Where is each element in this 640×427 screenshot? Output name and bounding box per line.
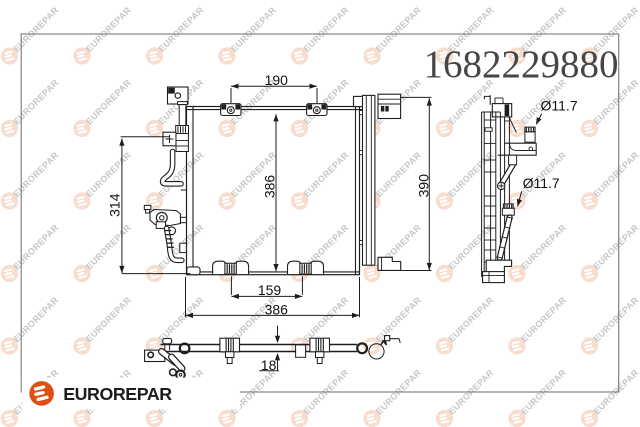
svg-text:1682229880: 1682229880 <box>424 43 619 86</box>
svg-text:18: 18 <box>261 357 277 373</box>
svg-text:314: 314 <box>106 193 122 217</box>
svg-text:390: 390 <box>416 174 432 198</box>
svg-text:190: 190 <box>265 72 289 88</box>
svg-text:Ø11.7: Ø11.7 <box>523 175 560 191</box>
svg-text:386: 386 <box>265 302 289 318</box>
svg-text:Ø11.7: Ø11.7 <box>541 98 578 114</box>
svg-text:EUROREPAR: EUROREPAR <box>63 384 172 404</box>
svg-text:159: 159 <box>258 282 282 298</box>
svg-text:386: 386 <box>262 175 278 199</box>
